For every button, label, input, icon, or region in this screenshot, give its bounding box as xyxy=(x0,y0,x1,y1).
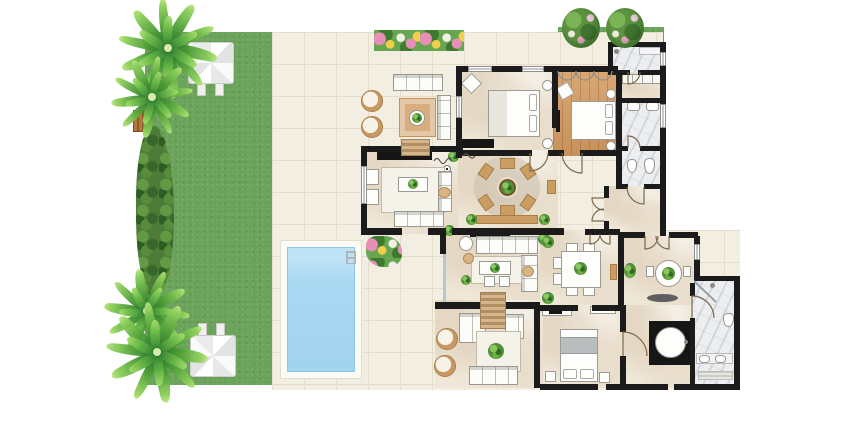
bed-1-throw xyxy=(489,91,507,136)
shower-head xyxy=(614,49,619,54)
coffee-table-1-plant xyxy=(408,179,418,189)
glass-livmain-left xyxy=(443,254,446,302)
wall-shower-bottom-b xyxy=(638,70,665,75)
wall-bed1-bottom-a xyxy=(456,150,532,156)
window-shower-right xyxy=(660,52,666,66)
nightstand-3a xyxy=(545,371,556,382)
wall-bed3-top-a xyxy=(540,305,578,311)
chair-d2-top-1 xyxy=(566,243,578,252)
plant-console-1a xyxy=(466,214,477,225)
nightstand-3b xyxy=(599,372,610,383)
outdoor-lounge-chair-3 xyxy=(436,328,458,350)
chair-d2-bottom-1 xyxy=(566,287,578,296)
wall-shower-bottom-a xyxy=(608,70,630,75)
basin-2 xyxy=(715,355,726,363)
foyer-stool-2 xyxy=(683,266,691,277)
wall-living2-top-a xyxy=(435,302,483,309)
window-foyer-right xyxy=(694,244,700,260)
wall-dining2-top xyxy=(585,229,620,235)
outdoor-lounge-chair-4 xyxy=(434,355,456,377)
bed-1-pillow-1 xyxy=(529,94,537,111)
desk-bedroom-1 xyxy=(461,139,494,148)
ottoman-2 xyxy=(499,276,510,287)
wall-toilet-bottom-a xyxy=(616,184,628,189)
wall-closet-bath-divider xyxy=(616,98,665,103)
pool-water xyxy=(287,247,355,372)
floor-hallway xyxy=(604,186,664,234)
tub-faucet xyxy=(684,340,688,344)
wall-bottom-c xyxy=(674,384,740,390)
wall-bed2-bottom-b xyxy=(580,150,622,156)
bed-3-blanket xyxy=(560,337,598,354)
outdoor-sofa-side xyxy=(437,95,451,140)
bed-3-pillow-2 xyxy=(580,369,594,379)
plant-dining-2b xyxy=(542,292,554,304)
wall-bed3-tub-divider-a xyxy=(620,305,626,332)
chair-d2-left-1 xyxy=(553,257,562,269)
flower-patch-pool xyxy=(366,236,402,267)
runner-living-1 xyxy=(401,139,430,156)
armchair-living-main xyxy=(459,236,473,251)
wall-bed3-tub-divider-b xyxy=(620,356,626,388)
sink-1 xyxy=(627,102,640,111)
wall-bath1-bottom-b xyxy=(640,146,665,151)
wall-livmain-left-stub xyxy=(440,228,446,254)
pool-ladder xyxy=(346,251,356,264)
wall-living1-bottom-a xyxy=(361,228,402,235)
bed-1-pillow-2 xyxy=(529,115,537,132)
flower-bed-top xyxy=(374,30,464,51)
wall-toilet-bottom-b xyxy=(644,184,665,189)
runner-living-2 xyxy=(480,292,506,329)
armchair-1a xyxy=(366,169,379,185)
pouf-living-main xyxy=(463,253,474,264)
window-bath1-right xyxy=(660,104,666,128)
chair-d2-top-2 xyxy=(583,243,595,252)
chair-d2-bottom-2 xyxy=(583,287,595,296)
wall-bottom-a xyxy=(540,384,598,390)
dining-table-2-plant xyxy=(574,262,587,275)
palm-center xyxy=(148,93,156,101)
sofa-living-2 xyxy=(469,366,518,385)
wall-shower-left xyxy=(608,42,613,72)
nightstand-2a xyxy=(606,89,616,99)
wall-living2-bed3-divider xyxy=(534,307,540,388)
outdoor-lounge-chair-2 xyxy=(361,116,383,138)
foyer-table-plant xyxy=(662,267,675,280)
bed-2-pillow-2 xyxy=(605,121,613,135)
tub xyxy=(655,327,686,358)
ottoman-1 xyxy=(484,276,495,287)
wall-right-lower xyxy=(734,276,740,390)
wall-tub-bath2-divider-b xyxy=(690,318,695,388)
window-bed1-top-1 xyxy=(468,66,492,72)
console-dining-1 xyxy=(476,215,538,224)
wall-tv xyxy=(452,228,564,235)
window-bed1-left xyxy=(456,96,462,118)
plant-dining-2c xyxy=(624,263,636,278)
closet-unit xyxy=(622,74,662,84)
floor-toilet-room xyxy=(618,150,665,188)
chair-d2-left-2 xyxy=(553,273,562,285)
window-living1-left xyxy=(361,166,367,204)
parasol-bottom-lounger-2 xyxy=(216,323,225,336)
palm-tree-4 xyxy=(108,303,206,401)
outdoor-table-plant xyxy=(412,113,422,123)
side-table-2 xyxy=(522,266,534,277)
wall-hall-left-a xyxy=(604,186,609,198)
wall-dining2-foyer-divider xyxy=(618,232,624,307)
bath-rug xyxy=(698,371,733,380)
shower-head-2 xyxy=(710,283,715,288)
console-dining-2 xyxy=(610,264,617,280)
armchair-1b xyxy=(366,189,379,205)
wall-hall-left-b xyxy=(604,221,609,234)
chair-d1-top xyxy=(500,158,515,169)
wall-bed3-top-b xyxy=(592,305,620,311)
stool-dining-1 xyxy=(547,180,556,194)
plant-dining-2a xyxy=(542,236,554,248)
sofa-living-1 xyxy=(394,211,444,227)
wall-bottom-b xyxy=(606,384,668,390)
plant-living-main-b xyxy=(461,275,471,285)
wall-bed1-bed2-divider xyxy=(552,66,558,128)
bed-2-pillow-1 xyxy=(605,104,613,118)
outdoor-lounge-chair-1 xyxy=(361,90,383,112)
wall-bed2-side-divider xyxy=(616,72,622,188)
window-bed1-top-2 xyxy=(522,66,544,72)
wall-bed2-bottom-a xyxy=(552,150,564,156)
wall-tub-bath2-divider-a xyxy=(690,283,695,296)
doormat xyxy=(647,294,678,302)
outdoor-sofa xyxy=(393,74,443,91)
bush-top-right-1 xyxy=(562,8,600,48)
palm-tree-2 xyxy=(113,58,191,136)
bush-top-right-2 xyxy=(606,8,644,48)
palm-center xyxy=(153,348,161,356)
foyer-stool-1 xyxy=(646,266,654,277)
palm-center xyxy=(164,44,172,52)
basin-1 xyxy=(699,355,710,363)
floor-plan xyxy=(0,0,863,422)
rug-living-2-plant xyxy=(488,343,504,359)
dining-table-1-plant xyxy=(501,181,514,194)
bed-3-pillow-1 xyxy=(563,369,577,379)
wall-living2-top-b xyxy=(505,302,540,309)
sink-2 xyxy=(646,102,659,111)
parasol-top-lounger-2 xyxy=(215,83,224,96)
side-table-1 xyxy=(438,187,451,198)
shower-bench xyxy=(639,47,662,55)
nightstand-1b xyxy=(542,138,553,149)
coffee-table-2-plant xyxy=(490,263,500,273)
sofa-living-main xyxy=(476,236,538,254)
plant-console-1b xyxy=(539,214,550,225)
